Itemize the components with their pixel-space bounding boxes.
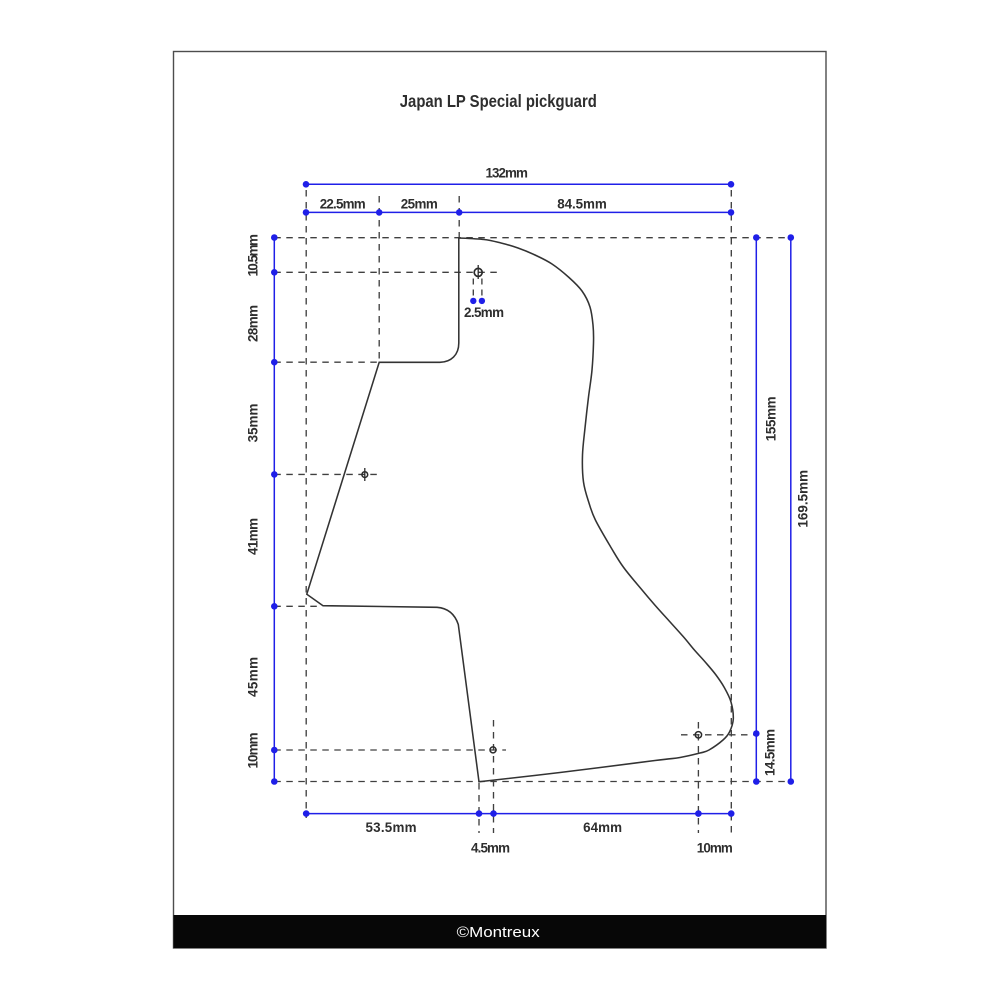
svg-text:84.5mm: 84.5mm — [557, 197, 607, 212]
svg-text:41mm: 41mm — [246, 518, 261, 555]
svg-text:169.5mm: 169.5mm — [795, 470, 810, 528]
svg-text:45mm: 45mm — [246, 657, 261, 697]
svg-text:4.5mm: 4.5mm — [471, 841, 510, 856]
svg-text:14.5mm: 14.5mm — [763, 729, 778, 776]
svg-text:10mm: 10mm — [697, 841, 733, 856]
svg-text:22.5mm: 22.5mm — [320, 197, 366, 212]
svg-text:53.5mm: 53.5mm — [366, 820, 417, 835]
svg-text:35mm: 35mm — [246, 404, 261, 443]
svg-text:10.5mm: 10.5mm — [246, 234, 261, 277]
svg-text:2.5mm: 2.5mm — [464, 305, 504, 320]
svg-text:10mm: 10mm — [246, 732, 261, 768]
svg-text:25mm: 25mm — [401, 197, 438, 212]
svg-text:28mm: 28mm — [246, 305, 261, 342]
svg-text:132mm: 132mm — [485, 166, 528, 181]
svg-text:Japan LP Special pickguard: Japan LP Special pickguard — [400, 91, 597, 111]
svg-text:155mm: 155mm — [763, 396, 778, 441]
svg-text:64mm: 64mm — [583, 820, 622, 835]
svg-text:©Montreux: ©Montreux — [457, 924, 541, 941]
